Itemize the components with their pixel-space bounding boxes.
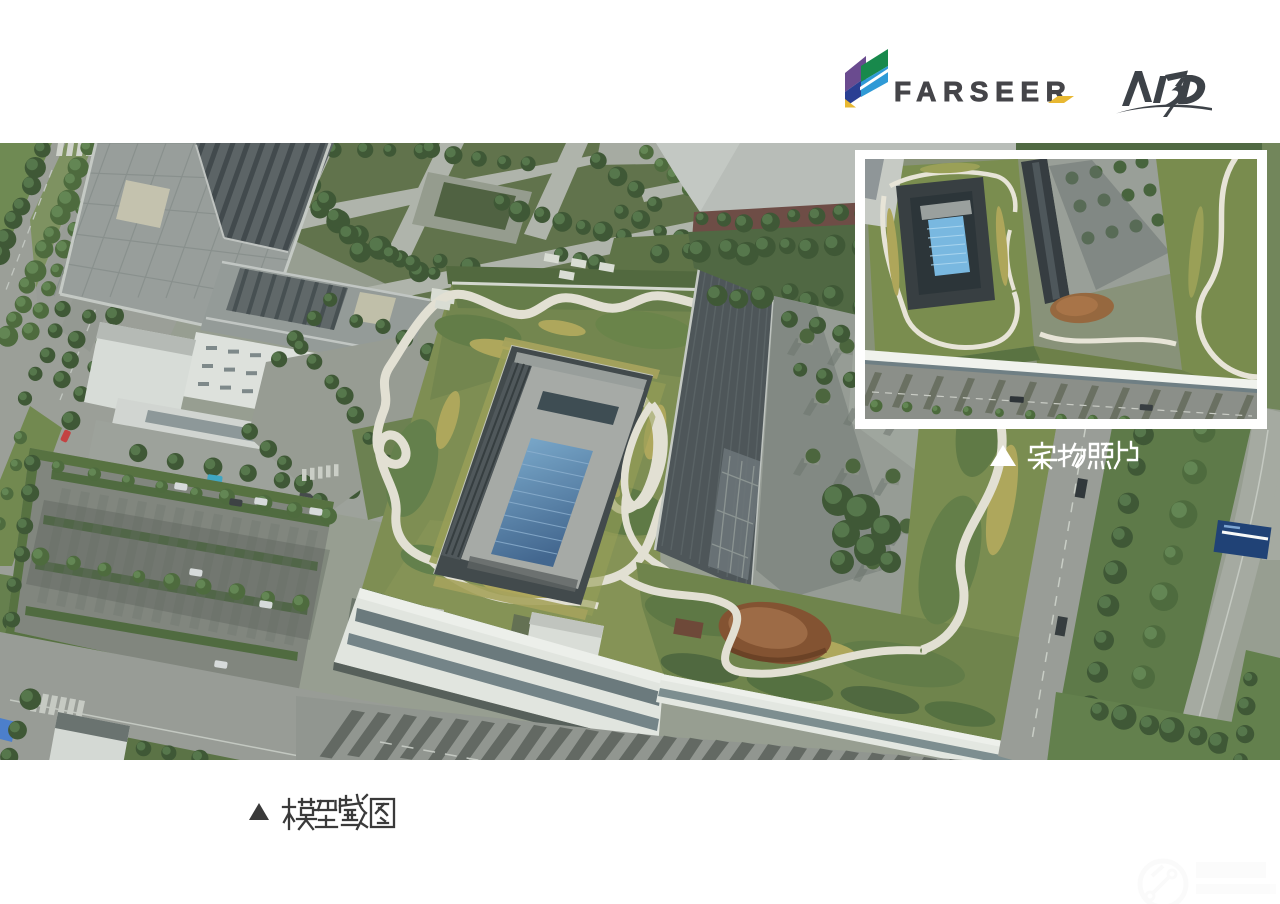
svg-text:FARSEER: FARSEER [894, 76, 1072, 107]
